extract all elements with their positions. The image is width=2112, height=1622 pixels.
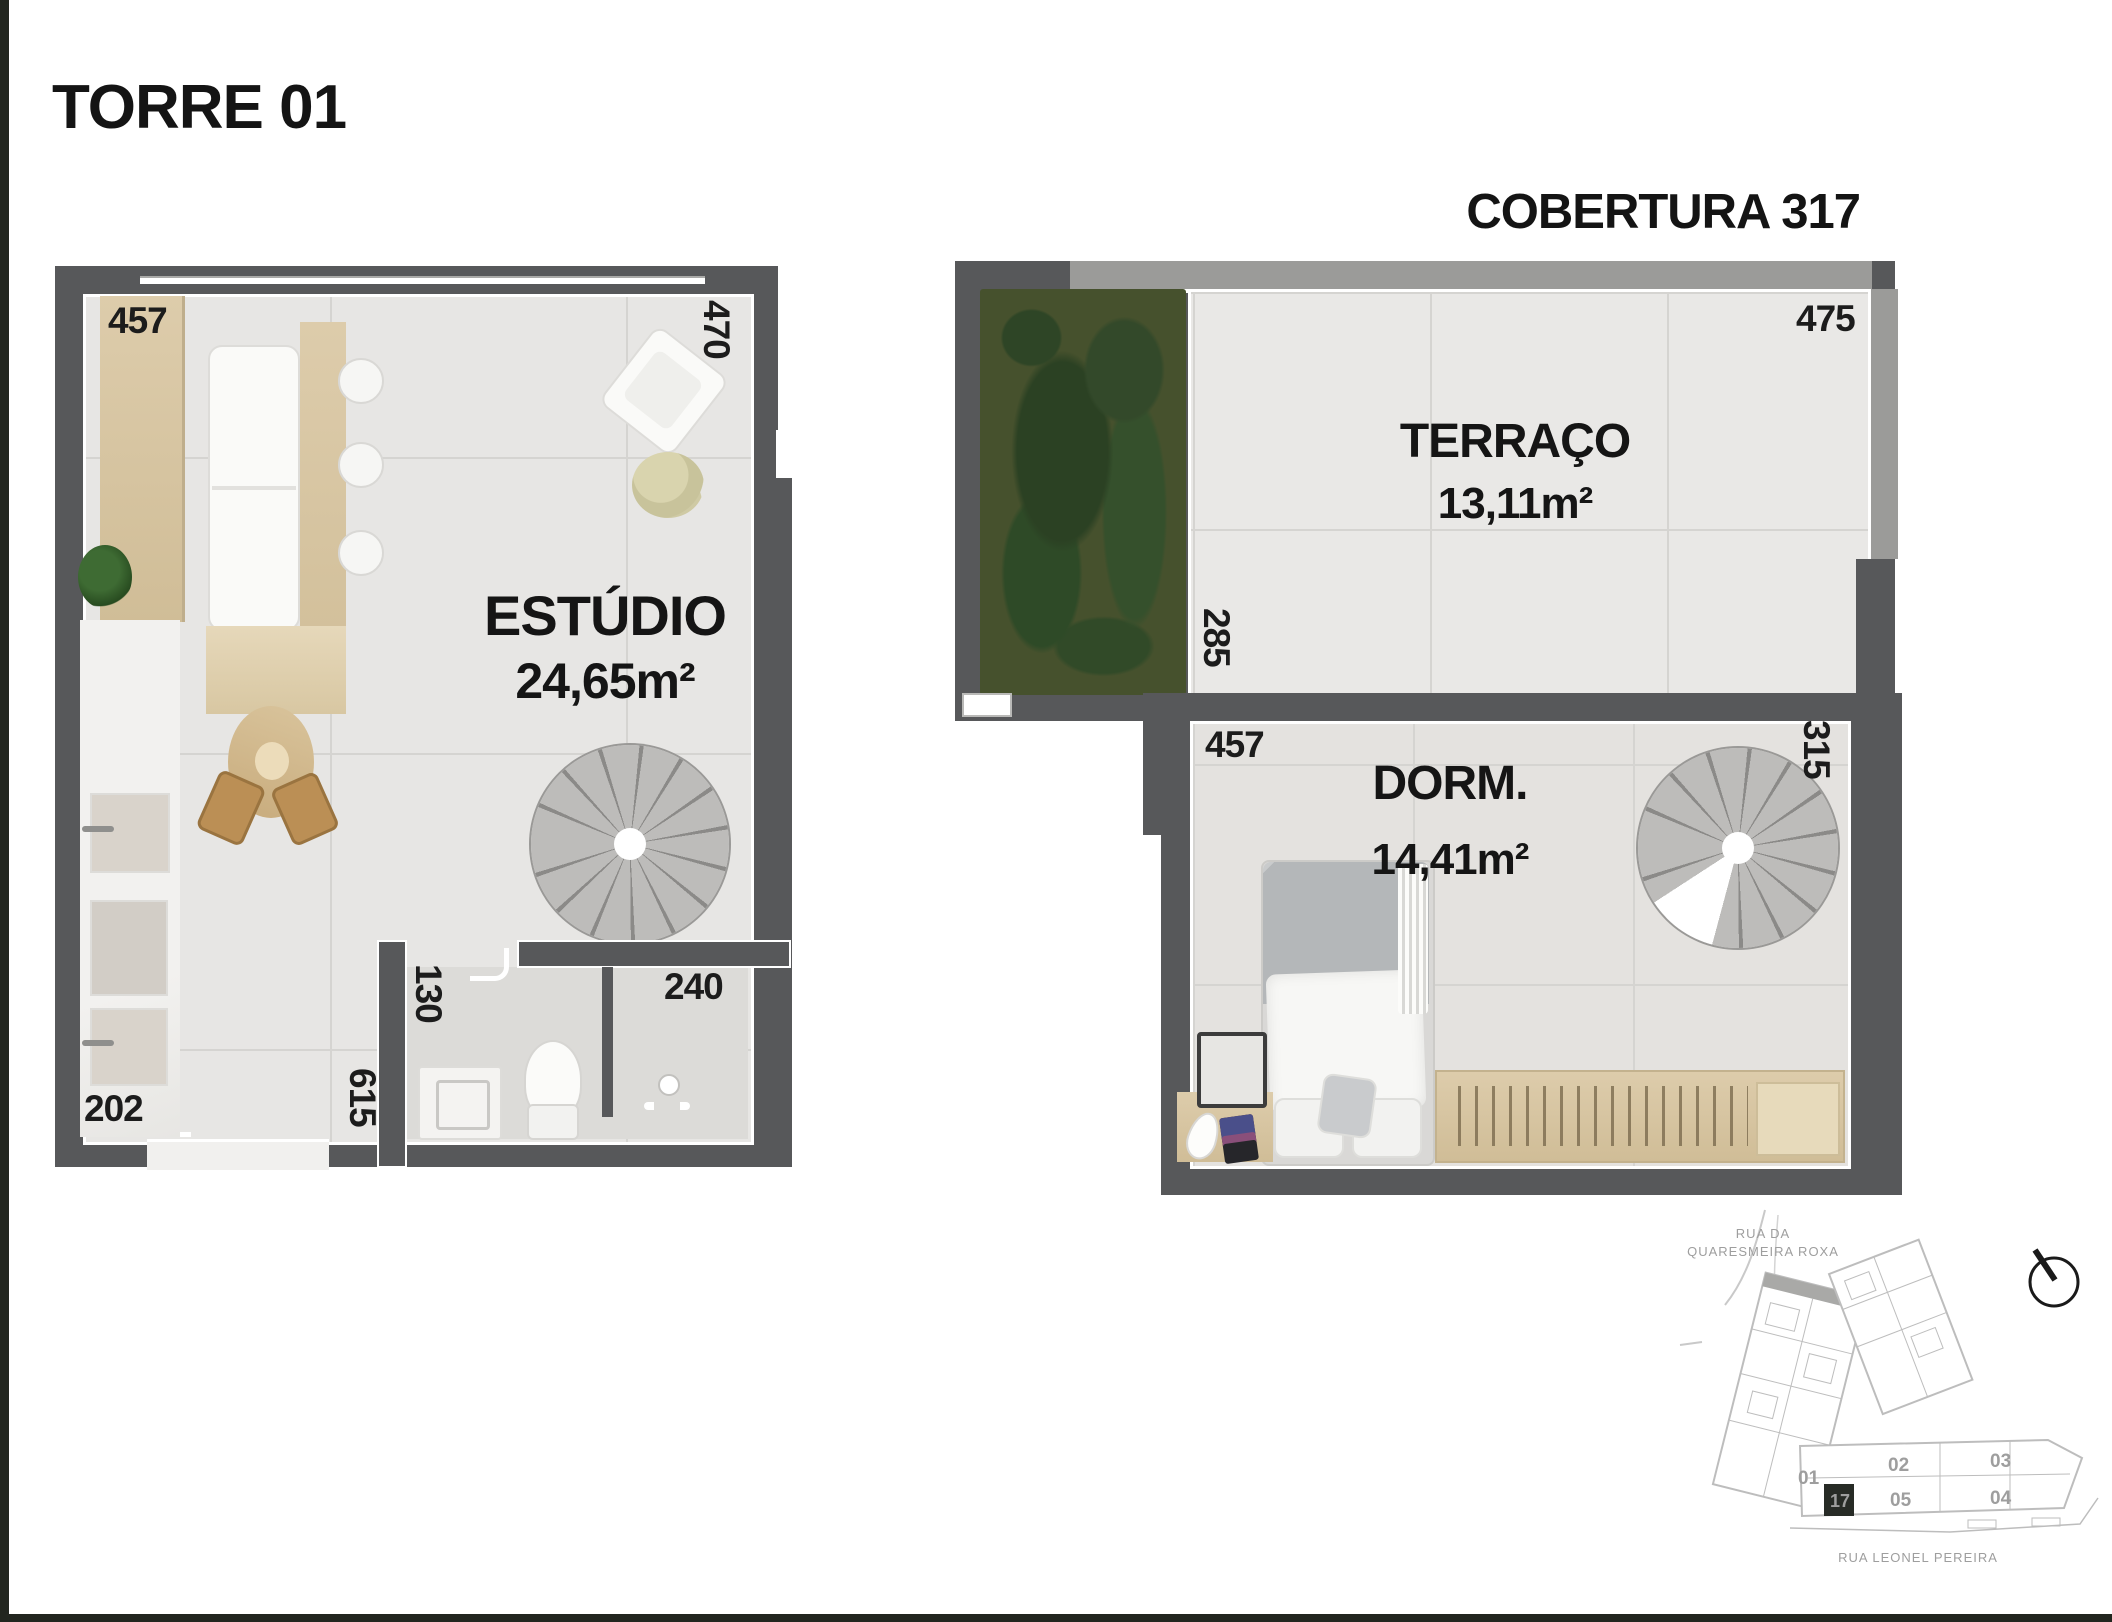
- dim-estudio-right: 470: [698, 300, 735, 359]
- desk-tablet-icon: [1219, 1114, 1259, 1164]
- street-bottom: RUA LEONEL PEREIRA: [1838, 1550, 1998, 1565]
- dorm-label: DORM.: [1270, 760, 1630, 808]
- estudio-label: ESTÚDIO: [450, 588, 760, 644]
- wardrobe-shelf: [1756, 1082, 1840, 1156]
- siteplan-tower-2: [1829, 1240, 1972, 1414]
- sofa-cushion-split: [212, 486, 296, 490]
- kitchen-oven-handle-icon: [82, 1040, 114, 1046]
- bathroom-door-swing-icon: [470, 948, 509, 981]
- terrace-window-left: [962, 693, 1012, 717]
- dim-terrace-top: 475: [1796, 300, 1855, 337]
- siteplan-unit-01: 01: [1798, 1468, 1820, 1489]
- terrace-garden: [980, 289, 1186, 695]
- bed-pillow-small: [1316, 1073, 1378, 1140]
- floorplan-sheet: TORRE 01 COBERTURA 317: [0, 0, 2112, 1622]
- desk-chair: [1197, 1032, 1267, 1108]
- wardrobe-hangers-icon: [1458, 1086, 1748, 1146]
- dorm-area: 14,41m²: [1270, 838, 1630, 882]
- dorm-wall-step-cut: [1143, 835, 1161, 1195]
- estudio-window-top: [140, 276, 705, 284]
- toilet-tank-icon: [527, 1104, 579, 1140]
- road-tick: [1680, 1342, 1702, 1345]
- shower-head-icon: [658, 1074, 680, 1096]
- street-top-line2: QUARESMEIRA ROXA: [1687, 1244, 1839, 1259]
- page-title: TORRE 01: [52, 72, 346, 143]
- estudio-right-wall-lower: [748, 478, 792, 1167]
- siteplan-unit-02: 02: [1888, 1455, 1909, 1476]
- terrace-label: TERRAÇO: [1335, 418, 1695, 466]
- estudio-entrance-opening: [147, 1139, 329, 1170]
- bottom-border-strip: [0, 1614, 2112, 1622]
- dim-hall: 615: [344, 1068, 381, 1127]
- dim-estudio-top: 457: [108, 302, 167, 339]
- siteplan-unit-03: 03: [1990, 1451, 2011, 1472]
- kitchen-oven: [90, 1008, 168, 1086]
- bathroom-top-wall: [518, 941, 790, 967]
- spiral-stairs-dorm-hub: [1722, 832, 1754, 864]
- round-table-center: [255, 742, 289, 780]
- sofa-platform: [206, 626, 346, 714]
- estudio-area: 24,65m²: [450, 656, 760, 706]
- dim-bath-door: 130: [410, 964, 447, 1023]
- rug-icon: [632, 452, 704, 518]
- bathroom-divider-wall: [602, 967, 613, 1117]
- plant-icon: [78, 545, 132, 609]
- dim-shower: 240: [664, 968, 723, 1005]
- kitchen-faucet-icon: [82, 826, 114, 832]
- siteplan-unit-17: 17: [1830, 1491, 1850, 1511]
- unit-title: COBERTURA 317: [1340, 184, 1860, 240]
- dim-garden: 285: [1198, 608, 1235, 667]
- estudio-wall-notch: [776, 430, 794, 478]
- dim-dorm-top: 457: [1205, 726, 1264, 763]
- stool-3: [338, 530, 384, 576]
- stool-2: [338, 442, 384, 488]
- street-top-line1: RUA DA: [1736, 1226, 1790, 1241]
- left-border-strip: [0, 0, 9, 1622]
- bed-runner: [1398, 864, 1428, 1014]
- kitchen-sink-unit: [90, 793, 170, 873]
- shower-valves-icon: [644, 1102, 690, 1110]
- siteplan-unit-05: 05: [1890, 1490, 1912, 1511]
- bathroom-sink-bowl: [436, 1080, 490, 1130]
- terrace-parapet-right: [1868, 289, 1898, 559]
- dim-estudio-kitchen: 202: [84, 1090, 143, 1127]
- dim-dorm-right: 315: [1798, 720, 1835, 779]
- spiral-stairs-estudio-hub: [614, 828, 646, 860]
- kitchen-appliance: [90, 900, 168, 996]
- terrace-area: 13,11m²: [1335, 482, 1695, 526]
- north-compass-icon: [2030, 1250, 2078, 1306]
- site-plan: 01 02 03 05 04 17 RUA DA QUARESMEIRA ROX…: [1650, 1190, 2112, 1610]
- siteplan-unit-04: 04: [1990, 1488, 2012, 1509]
- bathroom-left-wall: [378, 941, 406, 1167]
- stool-1: [338, 358, 384, 404]
